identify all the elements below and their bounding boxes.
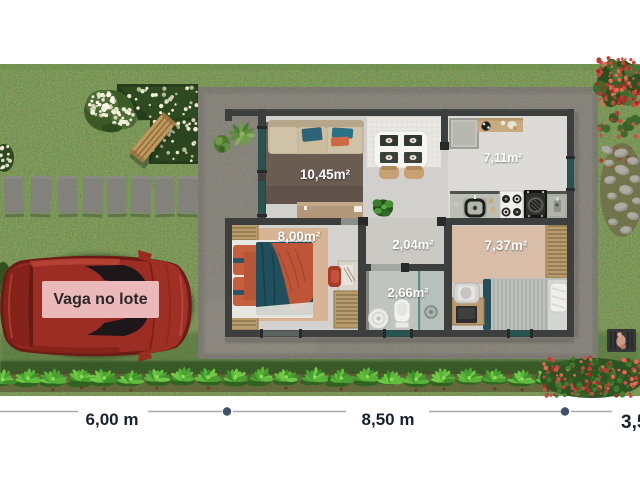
svg-text:2,66m²: 2,66m² — [387, 285, 429, 300]
svg-text:8,00m²: 8,00m² — [278, 229, 321, 244]
svg-text:3,50 m: 3,50 m — [621, 412, 640, 433]
svg-text:10,45m²: 10,45m² — [300, 167, 351, 182]
svg-text:7,37m²: 7,37m² — [485, 238, 528, 253]
svg-text:6,00 m: 6,00 m — [86, 410, 139, 429]
svg-text:8,50 m: 8,50 m — [362, 410, 415, 429]
svg-text:7,11m²: 7,11m² — [484, 151, 523, 165]
svg-text:Vaga no lote: Vaga no lote — [53, 291, 147, 308]
svg-text:2,04m²: 2,04m² — [392, 237, 434, 252]
